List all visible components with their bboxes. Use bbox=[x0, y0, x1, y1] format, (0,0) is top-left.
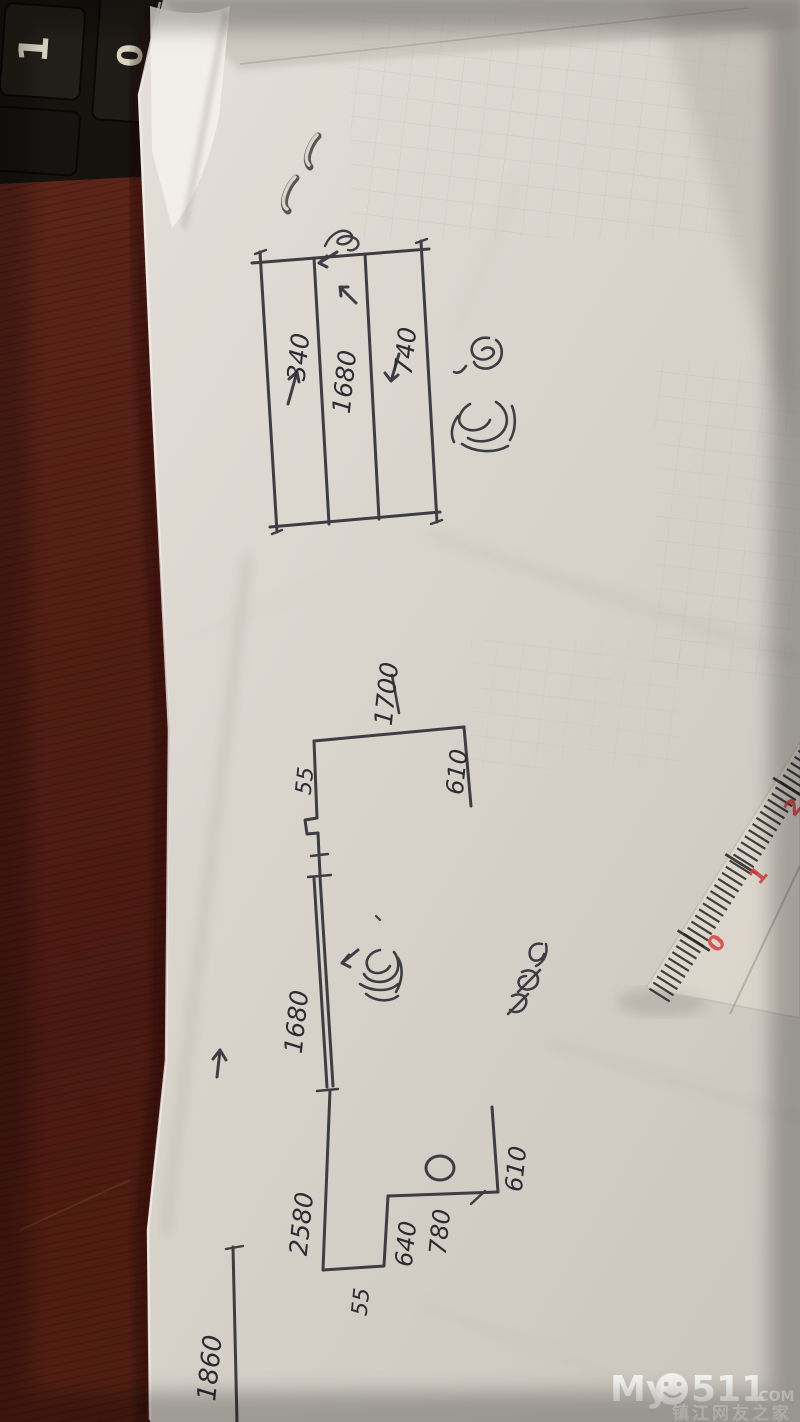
crumpled-paper bbox=[138, 0, 800, 1422]
smiley-eye bbox=[664, 1382, 669, 1387]
photo-of-hand-drawn-measurement-sketch: 1 0 bbox=[0, 0, 800, 1422]
plan-right-lower-dim: 610 bbox=[500, 1145, 533, 1193]
plan-step-depth: 640 bbox=[390, 1220, 423, 1268]
plan-lower-offset: 55 bbox=[348, 1287, 376, 1317]
plan-step-width: 780 bbox=[424, 1208, 457, 1256]
table-col1-value: 340 bbox=[282, 332, 316, 382]
table-col3-value: 740 bbox=[389, 326, 423, 376]
plan-right-upper-dim: 610 bbox=[441, 748, 474, 796]
plan-upper-offset: 55 bbox=[292, 766, 320, 796]
scene-svg: 1 0 bbox=[0, 0, 800, 1422]
grid-showthrough bbox=[350, 18, 750, 238]
smiley-eye bbox=[677, 1382, 682, 1387]
grid-showthrough bbox=[470, 640, 680, 770]
